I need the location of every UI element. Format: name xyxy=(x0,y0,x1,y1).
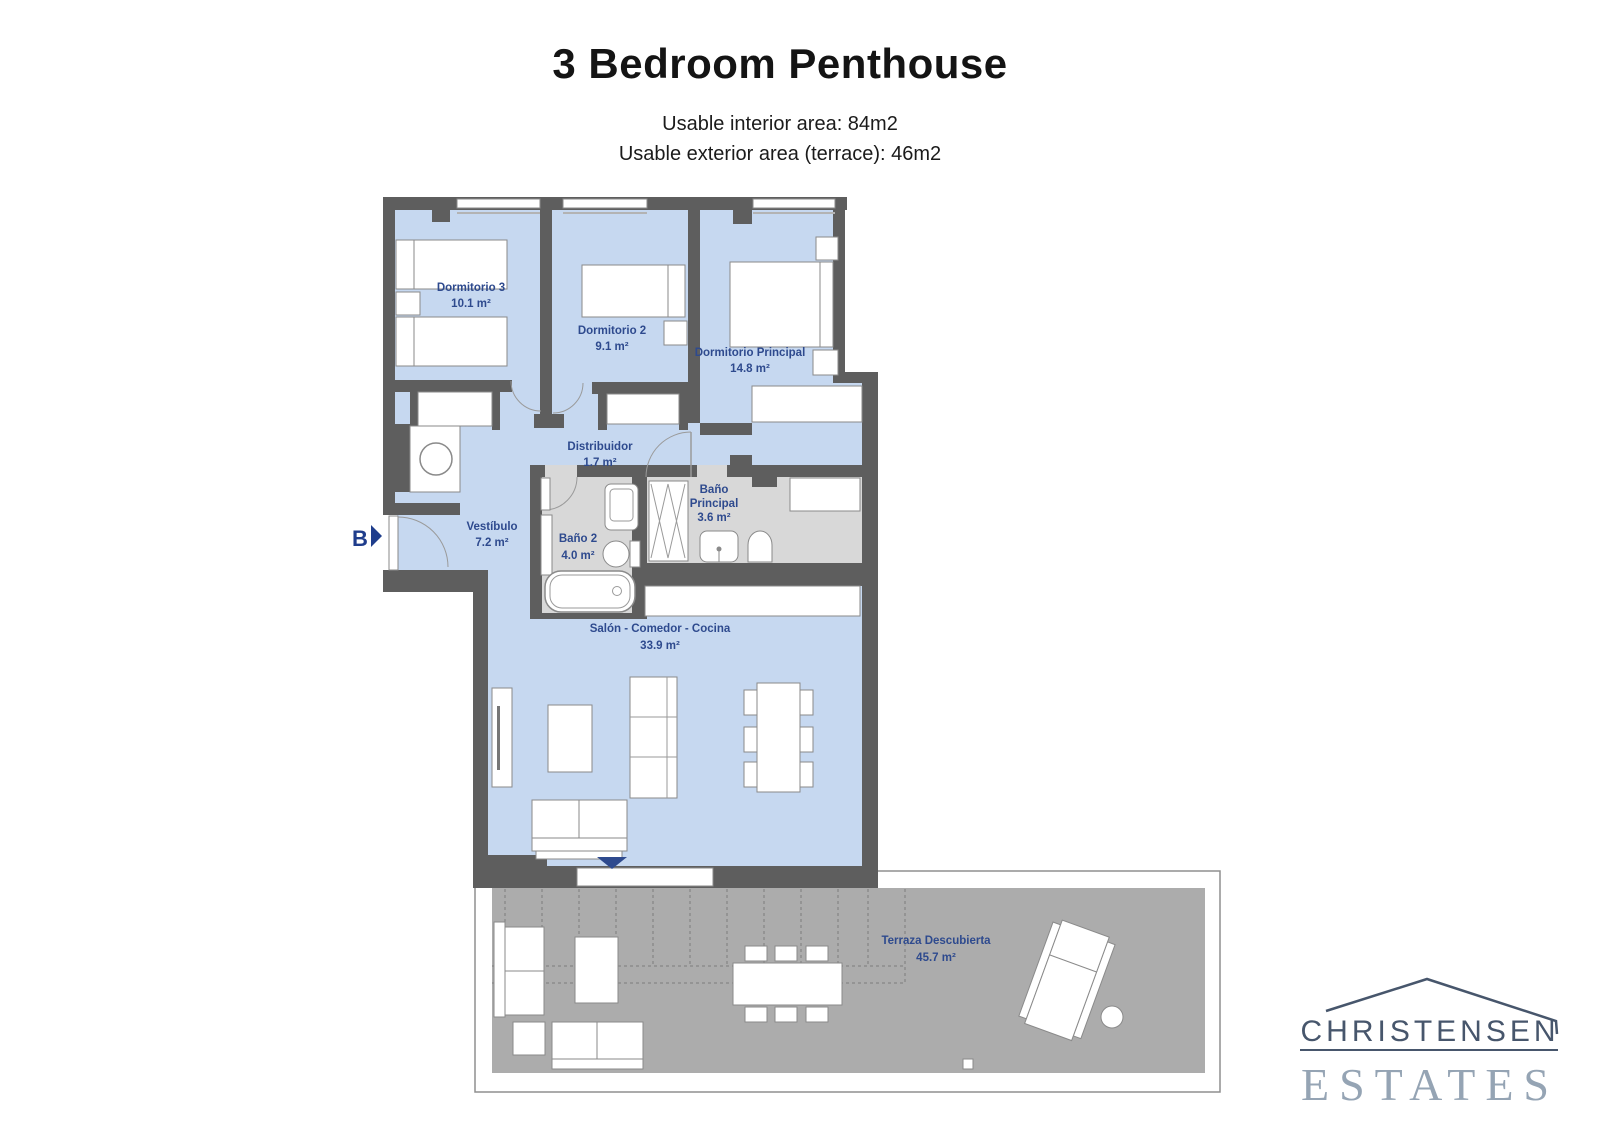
salon-shelving xyxy=(630,677,677,798)
dorm2-nightstand xyxy=(664,321,687,345)
window-dorm-principal xyxy=(753,199,835,208)
terrace-drain xyxy=(963,1059,973,1069)
wall-right-lower xyxy=(862,383,878,888)
tv-icon xyxy=(497,706,500,770)
logo-name: CHRISTENSEN xyxy=(1300,1015,1559,1048)
terrace-sliding-door xyxy=(577,868,713,886)
wall-dorm3-niche-right xyxy=(492,392,500,430)
wall-window-stub-b xyxy=(733,210,752,224)
terrace-dining-set xyxy=(733,946,842,1022)
bano2-wall-cabinet xyxy=(541,515,552,575)
bano2-toilet xyxy=(603,541,629,567)
dorm3-label: Dormitorio 3 xyxy=(437,282,505,294)
wall-right-stub xyxy=(833,372,878,383)
bano2-door-opening xyxy=(545,465,577,477)
logo-subname: ESTATES xyxy=(1301,1059,1559,1110)
distribuidor-label: Distribuidor xyxy=(567,441,633,453)
bano-principal-door-opening xyxy=(697,465,727,477)
salon-dining-set xyxy=(744,683,813,792)
salon-area: 33.9 m² xyxy=(640,640,680,652)
dorm-principal-bed xyxy=(730,262,833,347)
bano2-door-leaf xyxy=(541,478,550,510)
wall-left-mid xyxy=(383,424,395,515)
wall-bano-principal-bottom xyxy=(632,563,862,586)
bano-principal-area: 3.6 m² xyxy=(697,512,730,524)
terraza-area: 45.7 m² xyxy=(916,952,956,964)
wall-bano2-bottom-lip xyxy=(530,613,647,619)
window-dorm3 xyxy=(457,199,540,208)
christensen-estates-logo: CHRISTENSEN ESTATES xyxy=(1300,979,1560,1110)
bano2-label: Baño 2 xyxy=(559,533,597,545)
wall-dorm2-bottom xyxy=(592,382,688,394)
wall-bath-stub-b xyxy=(752,470,777,487)
terrace: Terraza Descubierta 45.7 m² xyxy=(475,871,1220,1092)
wall-window-stub-a xyxy=(432,210,450,222)
wall-dorm3-bottom-c xyxy=(497,380,512,392)
dorm3-bed-2 xyxy=(396,317,507,366)
tv-unit xyxy=(492,688,512,787)
vestibulo-area: 7.2 m² xyxy=(475,537,508,549)
dorm-principal-wardrobe xyxy=(752,386,862,422)
window-dorm2 xyxy=(563,199,647,208)
wall-dorm3-dorm2 xyxy=(540,210,552,414)
dorm-principal-nightstand-bottom xyxy=(813,350,838,375)
dorm2-bed xyxy=(582,265,685,317)
wall-salon-left xyxy=(473,592,488,876)
wall-vestibule-bottom xyxy=(383,570,488,592)
dorm-principal-area: 14.8 m² xyxy=(730,363,770,375)
wall-bath-stub-a xyxy=(730,455,752,477)
terrace-side-table xyxy=(1101,1006,1123,1028)
washing-machine-icon xyxy=(420,443,452,475)
terraza-label: Terraza Descubierta xyxy=(881,935,991,947)
wall-nook-side xyxy=(395,424,410,492)
bano-principal-label-2: Principal xyxy=(690,498,739,510)
wall-dorm3-niche-left xyxy=(410,392,418,430)
salon-side-table xyxy=(548,705,592,772)
dorm2-area: 9.1 m² xyxy=(595,341,628,353)
bano-principal-toilet xyxy=(748,531,772,562)
salon-label: Salón - Comedor - Cocina xyxy=(590,623,731,635)
vestibulo-label: Vestíbulo xyxy=(466,521,517,533)
dorm-principal-nightstand-top xyxy=(816,237,838,260)
dorm3-wardrobe xyxy=(418,392,492,426)
wall-bathrooms-top xyxy=(530,465,862,477)
wall-bano2-left xyxy=(530,465,542,617)
wall-dorm2-principal xyxy=(688,210,700,423)
bano-principal-cabinet xyxy=(790,478,860,511)
bano2-area: 4.0 m² xyxy=(561,550,594,562)
salon-sofa xyxy=(532,800,627,859)
entrance-b-label: B xyxy=(352,526,368,551)
wall-divider-foot xyxy=(534,414,564,428)
wall-principal-bottom xyxy=(700,423,752,435)
terrace-sofa xyxy=(494,922,544,1017)
wall-dorm2-niche-left xyxy=(598,394,607,430)
entrance-arrow-icon xyxy=(371,525,382,547)
distribuidor-area: 1.7 m² xyxy=(583,457,616,469)
laundry-nook xyxy=(410,426,460,492)
shower xyxy=(649,481,688,561)
dorm-principal-label: Dormitorio Principal xyxy=(695,347,806,359)
wall-dorm2-niche-right xyxy=(679,394,688,430)
dorm2-label: Dormitorio 2 xyxy=(578,325,646,337)
wall-vestibule-top xyxy=(383,503,460,515)
dorm2-wardrobe xyxy=(607,394,679,424)
floorplan-drawing: Terraza Descubierta 45.7 m² xyxy=(0,0,1600,1131)
floorplan-page: 3 Bedroom Penthouse Usable interior area… xyxy=(0,0,1600,1131)
bano2-toilet-tank xyxy=(630,541,640,567)
dorm3-nightstand xyxy=(396,292,420,315)
terrace-ottoman xyxy=(513,1022,545,1055)
entrance-door-leaf xyxy=(389,516,398,570)
bano-principal-label-1: Baño xyxy=(700,484,729,496)
dorm3-area: 10.1 m² xyxy=(451,298,491,310)
terrace-coffee-table xyxy=(575,937,618,1003)
wall-dorm3-bottom-a xyxy=(383,380,412,392)
wall-dorm3-bottom-b xyxy=(412,380,500,392)
terrace-sofa-2 xyxy=(552,1022,643,1069)
kitchen-counter xyxy=(645,586,860,616)
